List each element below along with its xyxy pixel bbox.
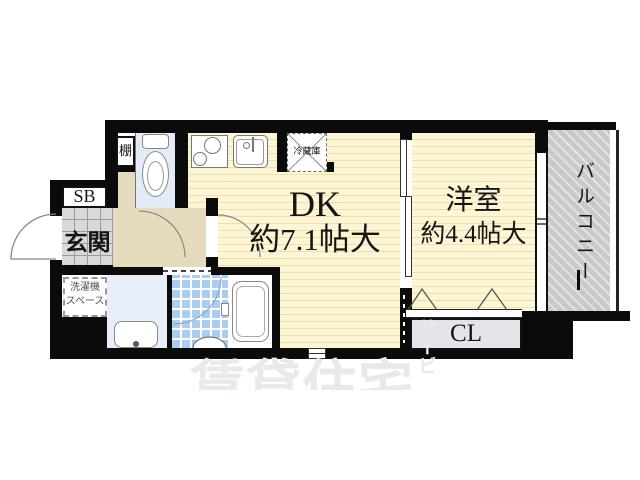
label-shelf: 棚 bbox=[116, 144, 135, 158]
room-label-dk-size: 約7.1帖大 bbox=[215, 224, 415, 257]
wall-bath-dk bbox=[272, 275, 280, 348]
stove-burner-1 bbox=[204, 137, 221, 154]
label-washer-line1: 洗濯機 bbox=[61, 283, 109, 294]
label-fridge: 冷蔵庫 bbox=[285, 147, 329, 156]
stove-burner-2 bbox=[193, 152, 207, 166]
wall-entry-left-upper bbox=[50, 188, 62, 216]
sliding-door-panel-a bbox=[400, 139, 407, 197]
washroom-door-dash bbox=[163, 270, 211, 272]
label-closet: CL bbox=[410, 321, 522, 347]
label-shoe-box: SB bbox=[62, 187, 107, 206]
pillar-dash-mark bbox=[403, 295, 405, 343]
bathtub-handle bbox=[221, 303, 229, 316]
vent-divider bbox=[309, 353, 325, 354]
entrance-door-arc bbox=[11, 214, 56, 259]
room-label-west-size: 約4.4帖大 bbox=[402, 222, 545, 248]
vent-bottom-wall bbox=[308, 348, 326, 359]
sink-faucet bbox=[243, 142, 250, 149]
wall-fridge-stub bbox=[326, 162, 334, 172]
room-label-west: 洋室 bbox=[412, 186, 535, 215]
closet-door-track bbox=[406, 309, 522, 318]
wall-entrance-bottom bbox=[50, 265, 113, 275]
wall-west-right-top bbox=[535, 122, 548, 153]
kitchen-sink-inner bbox=[236, 139, 264, 165]
room-label-entrance: 玄関 bbox=[62, 231, 113, 255]
bathtub-inner bbox=[236, 286, 265, 337]
washroom-sliding-door bbox=[163, 267, 211, 275]
wall-hall-dk-pillar-top bbox=[206, 198, 218, 216]
toilet-bowl-inner bbox=[147, 161, 164, 191]
toilet-tank bbox=[142, 134, 169, 149]
floor-plan: DK 約7.1帖大 洋室 約4.4帖大 バルコニー 玄関 SB 棚 冷蔵庫 洗濯… bbox=[0, 0, 640, 480]
wall-washer-block bbox=[62, 317, 107, 348]
wall-slide-pillar-top bbox=[400, 122, 412, 140]
wall-balcony-top bbox=[548, 122, 616, 130]
wall-balcony-bottom bbox=[542, 311, 630, 321]
bathroom-floor bbox=[172, 275, 228, 348]
wall-washroom-bath bbox=[167, 275, 172, 348]
room-label-dk: DK bbox=[245, 186, 385, 224]
sink-faucet-lever bbox=[252, 137, 254, 152]
vanity-faucet-dot bbox=[133, 341, 139, 347]
hallway-strip bbox=[118, 172, 135, 208]
balcony-rail bbox=[610, 130, 619, 311]
wall-toilet-right bbox=[175, 122, 188, 208]
label-washer-space: 洗濯機 スペース bbox=[61, 283, 109, 307]
label-washer-line2: スペース bbox=[61, 297, 109, 308]
hallway-floor bbox=[113, 208, 207, 268]
room-label-balcony: バルコニー bbox=[563, 148, 593, 298]
